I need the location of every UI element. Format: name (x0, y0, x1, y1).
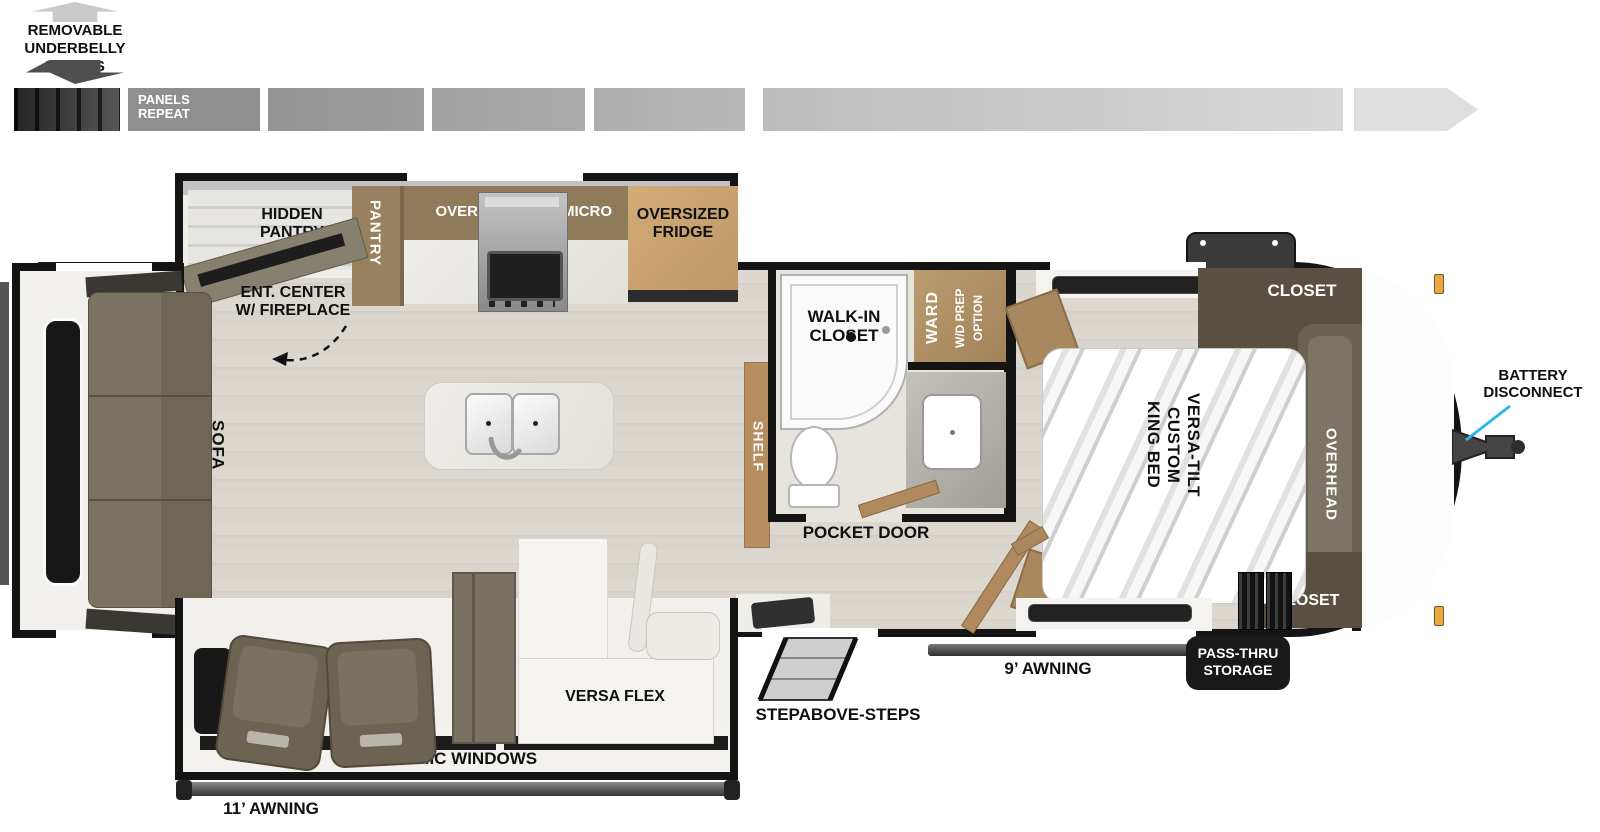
shower-glass (790, 284, 898, 420)
bedroom-window-bottom (1028, 604, 1192, 622)
sofa-cushion-line (89, 395, 211, 397)
underbelly-panel-arrow (1354, 88, 1478, 131)
range-stove (478, 192, 568, 312)
toilet (790, 426, 838, 490)
bed-line-1: VERSA-TILT (1183, 393, 1203, 497)
bath-door-gap (806, 514, 902, 522)
rear-bumper (0, 282, 9, 585)
awning-11-endcap-left (176, 780, 192, 800)
underbelly-panel-4 (432, 88, 585, 131)
battery-line-2: DISCONNECT (1470, 385, 1596, 402)
vanity-sink (922, 394, 982, 470)
bed-line-2: CUSTOM (1163, 393, 1183, 497)
awning-11-bar (184, 782, 732, 796)
ent-center-arrow-icon (268, 322, 352, 370)
marker-light-bottom (1434, 606, 1444, 626)
floorplan-diagram: REMOVABLE UNDERBELLY PANELS PANELS REPEA… (0, 0, 1600, 832)
theater-seat-left (214, 633, 337, 773)
awning-9-label: 9’ AWNING (988, 660, 1108, 679)
panels-repeat-line-2: REPEAT (138, 107, 260, 121)
drain-dot (486, 421, 491, 426)
pass-thru-line-1: PASS-THRU (1186, 645, 1290, 662)
battery-disconnect-label: BATTERY DISCONNECT (1470, 368, 1596, 401)
king-bed: VERSA-TILT CUSTOM KING BED (1042, 348, 1306, 604)
sofa-slide-window-gap-top (56, 263, 152, 271)
wd-prep-label: W/D PREP (954, 276, 967, 360)
ward-cabinet: WARD W/D PREP OPTION (914, 270, 1006, 364)
platform-bolt (1272, 240, 1278, 246)
footrest (246, 730, 289, 748)
overhead-bed-label: OVERHEAD (1322, 428, 1339, 521)
underbelly-line-2: UNDERBELLY (2, 40, 148, 58)
cabinet-edge (472, 574, 475, 742)
walk-in-line-2: CLOSET (784, 327, 904, 346)
drain-dot (950, 430, 955, 435)
stove-knobs (489, 301, 555, 307)
battery-disconnect-line (1458, 402, 1522, 446)
awning-11-label: 11’ AWNING (206, 800, 336, 819)
seat-cushion (337, 648, 419, 726)
bedroom-divider-wall (1006, 262, 1016, 522)
shelf: SHELF (744, 362, 770, 548)
ent-center-line-1: ENT. CENTER (218, 284, 368, 302)
awning-9-bar (928, 644, 1190, 656)
bedroom-window-top (1052, 276, 1210, 294)
platform-bolt (1200, 240, 1206, 246)
stove-vent (485, 197, 559, 207)
underbelly-up-arrow-icon (32, 2, 118, 22)
kitchen-island (424, 382, 614, 470)
theater-seat-right (325, 637, 437, 768)
shelf-label: SHELF (750, 421, 765, 472)
kitchen-slide-window-gap (407, 173, 583, 181)
seat-cushion (231, 645, 319, 729)
steps-label: STEPABOVE-STEPS (748, 706, 928, 725)
versa-flex-desk-vertical (518, 538, 608, 662)
bedroom-window-gap-top (1050, 262, 1206, 270)
fridge-line-1: OVERSIZED (628, 206, 738, 224)
underbelly-panel-5 (594, 88, 745, 131)
ward-vanity-divider (908, 362, 1012, 370)
fridge-line-2: FRIDGE (628, 224, 738, 242)
ent-center-label: ENT. CENTER W/ FIREPLACE (218, 284, 368, 319)
panel-stripes (14, 88, 120, 131)
footrest (360, 733, 403, 747)
walk-in-closet-label: WALK-IN CLOSET (784, 308, 904, 345)
wd-option-label: OPTION (972, 276, 985, 360)
bed-line-3: KING BED (1143, 393, 1163, 497)
pass-thru-label: PASS-THRU STORAGE (1186, 645, 1290, 679)
pass-thru-tag: PASS-THRU STORAGE (1186, 636, 1290, 690)
drain-dot (533, 421, 538, 426)
sofa-cushion-line (89, 499, 211, 501)
hidden-pantry-line-1: HIDDEN (230, 206, 354, 224)
underbelly-panel-2: PANELS REPEAT (128, 88, 260, 131)
underbelly-line-1: REMOVABLE (2, 22, 148, 40)
faucet-icon (485, 437, 525, 467)
pocket-door-label: POCKET DOOR (796, 524, 936, 543)
desk-chair-seat (646, 612, 720, 660)
underbelly-panel-3 (268, 88, 424, 131)
closet-top-label: CLOSET (1242, 282, 1362, 301)
sofa-slide-side-window (43, 318, 83, 586)
awning-11-endcap-right (724, 780, 740, 800)
dresser-slats (1266, 572, 1292, 630)
sofa-label: SOFA (208, 420, 227, 470)
king-bed-label: VERSA-TILT CUSTOM KING BED (1143, 393, 1203, 497)
fridge-front (628, 290, 738, 302)
oversized-fridge: OVERSIZED FRIDGE (628, 186, 738, 302)
oven-window (487, 251, 563, 301)
shower (780, 274, 908, 430)
panels-repeat-line-1: PANELS (138, 93, 260, 107)
sofa (88, 292, 212, 608)
pantry-label: PANTRY (366, 200, 383, 266)
bedroom-window-gap-bottom (1036, 629, 1196, 637)
ent-center-line-2: W/ FIREPLACE (218, 302, 368, 320)
underbelly-panel-6 (763, 88, 1343, 131)
dresser-slats (1238, 572, 1264, 630)
pass-thru-line-2: STORAGE (1186, 662, 1290, 679)
battery-line-1: BATTERY (1470, 368, 1596, 385)
ward-label: WARD (924, 280, 942, 356)
walk-in-line-1: WALK-IN (784, 308, 904, 327)
front-cap (1346, 270, 1454, 629)
underbelly-panel-1 (14, 88, 120, 131)
versa-flex-label: VERSA FLEX (540, 688, 690, 706)
marker-light-top (1434, 274, 1444, 294)
entry-steps-icon (756, 636, 886, 710)
toilet-tank (788, 484, 840, 508)
tall-cabinet (452, 572, 516, 744)
fridge-label: OVERSIZED FRIDGE (628, 206, 738, 241)
sofa-backrest (161, 293, 211, 607)
